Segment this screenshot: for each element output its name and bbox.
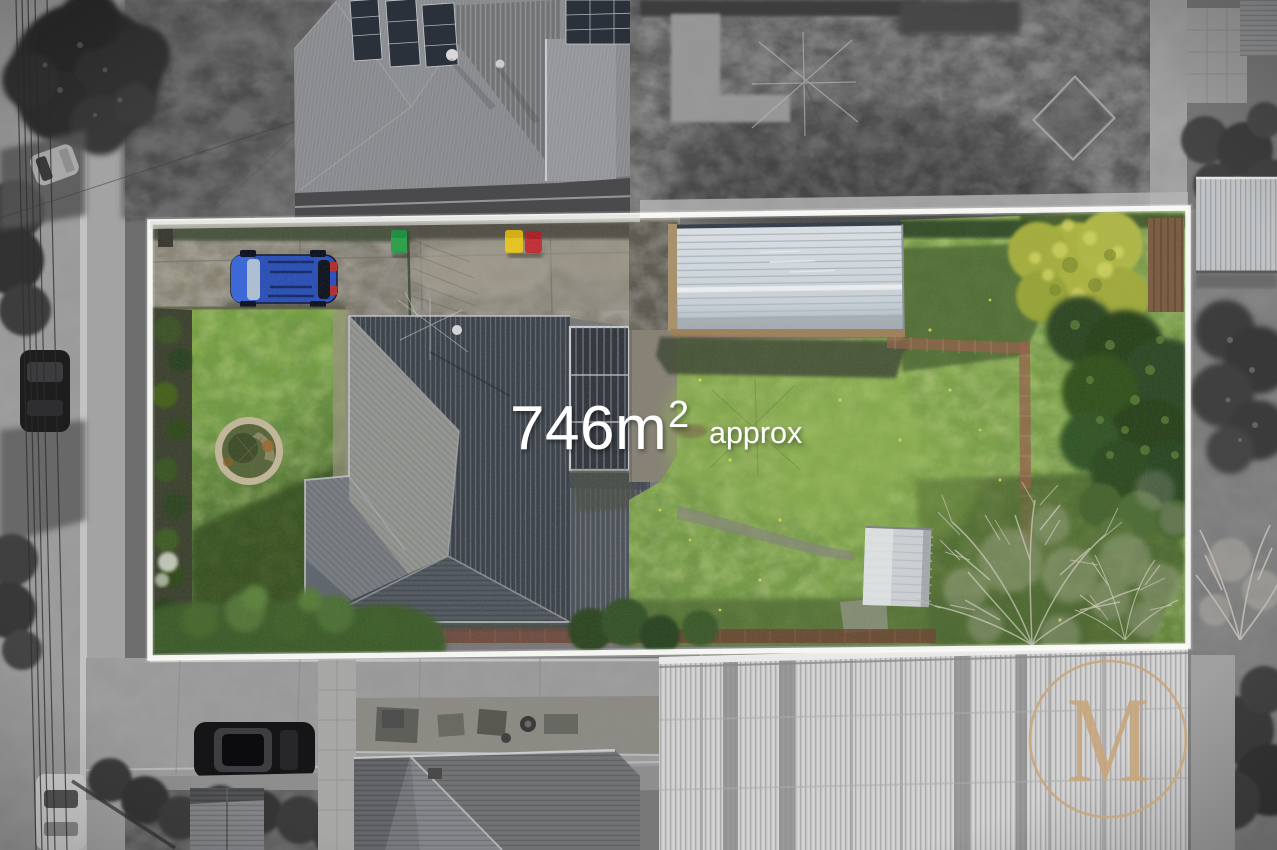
- svg-text:746m: 746m: [510, 394, 667, 463]
- svg-text:M: M: [1066, 672, 1149, 808]
- svg-text:approx: approx: [709, 416, 802, 450]
- svg-text:2: 2: [668, 394, 689, 436]
